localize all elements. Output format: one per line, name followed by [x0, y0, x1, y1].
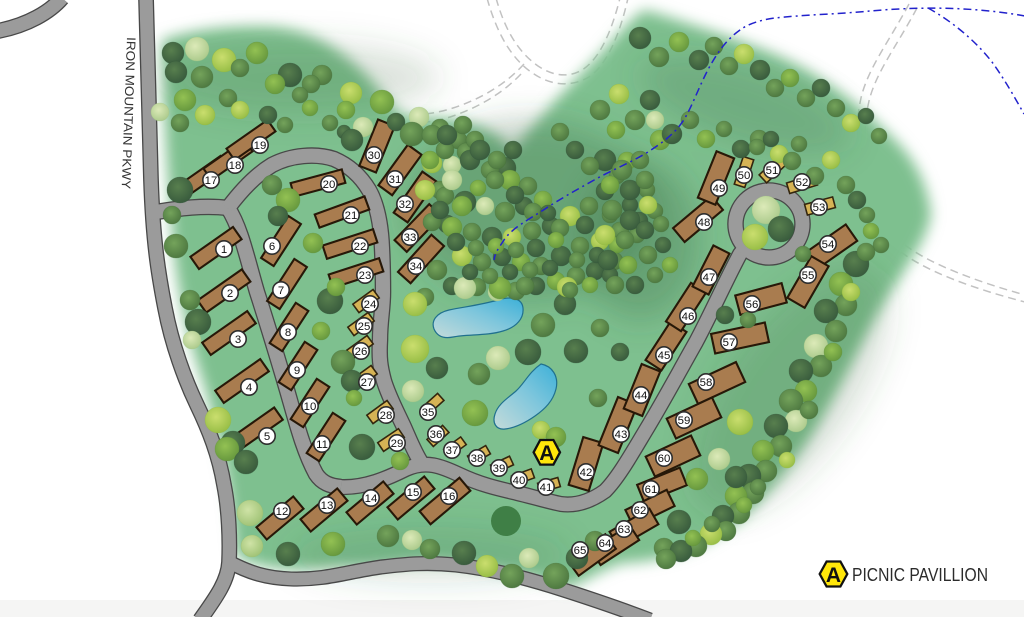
svg-text:23: 23 [359, 270, 372, 282]
svg-text:28: 28 [380, 410, 393, 422]
svg-text:49: 49 [713, 183, 726, 195]
svg-text:5: 5 [264, 431, 270, 443]
svg-text:27: 27 [361, 377, 374, 389]
svg-text:19: 19 [254, 140, 267, 152]
svg-text:32: 32 [399, 199, 412, 211]
svg-text:35: 35 [422, 407, 435, 419]
svg-text:30: 30 [368, 150, 381, 162]
svg-text:15: 15 [407, 487, 420, 499]
svg-text:1: 1 [221, 244, 227, 256]
svg-text:34: 34 [410, 261, 423, 273]
svg-text:55: 55 [802, 270, 815, 282]
svg-text:8: 8 [285, 327, 291, 339]
svg-text:4: 4 [246, 382, 252, 394]
svg-text:6: 6 [269, 241, 275, 253]
svg-text:61: 61 [645, 484, 658, 496]
svg-text:57: 57 [723, 337, 736, 349]
svg-text:53: 53 [813, 202, 826, 214]
svg-text:63: 63 [618, 524, 631, 536]
svg-text:36: 36 [430, 429, 443, 441]
svg-text:PICNIC PAVILLION: PICNIC PAVILLION [852, 564, 988, 585]
svg-text:43: 43 [615, 429, 628, 441]
svg-text:40: 40 [513, 475, 526, 487]
svg-text:13: 13 [321, 500, 334, 512]
svg-text:44: 44 [635, 390, 648, 402]
svg-text:11: 11 [316, 439, 328, 451]
svg-text:33: 33 [404, 232, 417, 244]
svg-text:41: 41 [540, 482, 553, 494]
svg-text:7: 7 [278, 285, 284, 297]
svg-text:3: 3 [235, 334, 241, 346]
svg-text:26: 26 [355, 346, 368, 358]
svg-text:62: 62 [634, 505, 647, 517]
svg-text:12: 12 [276, 506, 289, 518]
svg-text:65: 65 [574, 545, 587, 557]
svg-text:14: 14 [365, 493, 378, 505]
svg-text:52: 52 [796, 177, 809, 189]
svg-text:24: 24 [364, 299, 377, 311]
svg-text:2: 2 [227, 288, 233, 300]
svg-text:10: 10 [304, 401, 317, 413]
svg-text:45: 45 [658, 350, 671, 362]
svg-text:9: 9 [294, 365, 300, 377]
svg-text:A: A [826, 564, 841, 587]
svg-text:29: 29 [391, 438, 404, 450]
svg-text:39: 39 [493, 463, 506, 475]
svg-text:58: 58 [700, 377, 713, 389]
svg-text:60: 60 [658, 453, 671, 465]
svg-text:50: 50 [738, 170, 751, 182]
svg-text:18: 18 [229, 160, 242, 172]
svg-text:22: 22 [354, 241, 367, 253]
svg-text:20: 20 [323, 179, 336, 191]
svg-text:25: 25 [358, 321, 371, 333]
svg-text:59: 59 [678, 415, 691, 427]
svg-text:46: 46 [682, 311, 695, 323]
svg-text:51: 51 [766, 165, 779, 177]
svg-text:42: 42 [580, 467, 593, 479]
svg-text:37: 37 [446, 445, 459, 457]
svg-text:17: 17 [205, 175, 218, 187]
svg-text:A: A [539, 442, 554, 465]
svg-text:31: 31 [389, 174, 402, 186]
svg-text:48: 48 [698, 217, 711, 229]
svg-text:38: 38 [471, 453, 484, 465]
svg-text:47: 47 [703, 272, 716, 284]
svg-text:56: 56 [746, 299, 759, 311]
svg-text:64: 64 [599, 538, 612, 550]
svg-text:21: 21 [345, 210, 358, 222]
svg-text:54: 54 [822, 239, 835, 251]
svg-text:16: 16 [443, 491, 456, 503]
